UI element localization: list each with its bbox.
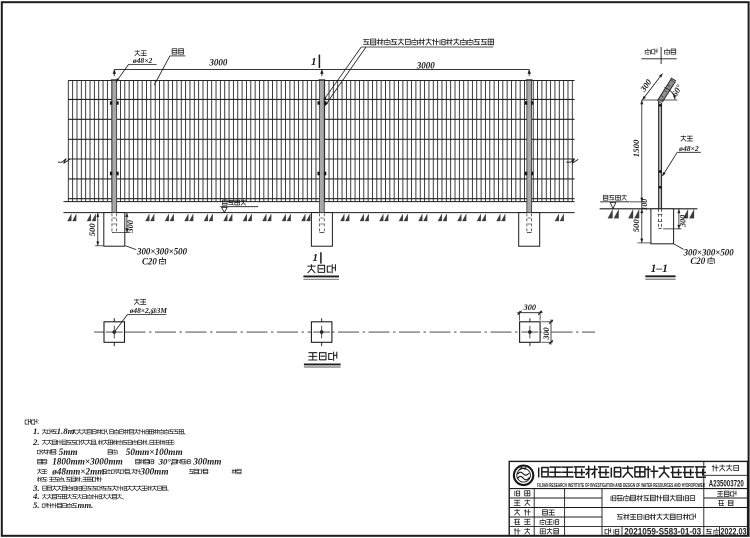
svg-text:300: 300 xyxy=(523,303,536,312)
svg-text:300mm: 300mm xyxy=(192,457,221,467)
svg-text:5mm: 5mm xyxy=(59,447,78,457)
svg-text:2.: 2. xyxy=(32,437,40,447)
svg-text:ø48mm×2mm: ø48mm×2mm xyxy=(51,467,104,477)
svg-text:1.: 1. xyxy=(33,426,40,436)
svg-text:1: 1 xyxy=(311,56,317,68)
svg-text:1–1: 1–1 xyxy=(651,263,668,275)
svg-text:1800mm×3000mm: 1800mm×3000mm xyxy=(52,457,123,467)
svg-text:C20: C20 xyxy=(690,256,705,266)
svg-text:ø48×2: ø48×2 xyxy=(132,56,153,65)
svg-text:FUJIAN RESEARCH INSTITUTE OF I: FUJIAN RESEARCH INSTITUTE OF INVESTIGATI… xyxy=(537,483,705,489)
svg-text:ø48×2,@3M: ø48×2,@3M xyxy=(129,306,168,315)
svg-text:50mm×100mm: 50mm×100mm xyxy=(126,447,183,457)
svg-text:A235003720: A235003720 xyxy=(709,478,744,488)
svg-text:1500: 1500 xyxy=(631,139,641,157)
svg-text:300: 300 xyxy=(542,327,551,340)
svg-text:1.8m: 1.8m xyxy=(57,426,75,436)
svg-text:300×300×500: 300×300×500 xyxy=(136,246,188,256)
svg-text:500: 500 xyxy=(87,223,97,237)
svg-text:30°,: 30°, xyxy=(158,457,174,467)
svg-text:1: 1 xyxy=(313,252,319,264)
svg-text:2021059-S583-01-03: 2021059-S583-01-03 xyxy=(624,526,701,536)
svg-text:300mm: 300mm xyxy=(139,467,168,477)
svg-text:3000: 3000 xyxy=(208,58,228,68)
svg-text:mm.: mm. xyxy=(78,500,94,510)
svg-text:ø48×2: ø48×2 xyxy=(678,144,699,153)
svg-text:300: 300 xyxy=(126,220,135,233)
svg-text:C20: C20 xyxy=(142,257,157,267)
svg-text:500: 500 xyxy=(631,219,641,233)
svg-text:300: 300 xyxy=(679,215,688,228)
svg-text:3000: 3000 xyxy=(416,61,436,71)
svg-text:5.: 5. xyxy=(33,500,40,510)
svg-text:2022.03: 2022.03 xyxy=(721,526,747,536)
